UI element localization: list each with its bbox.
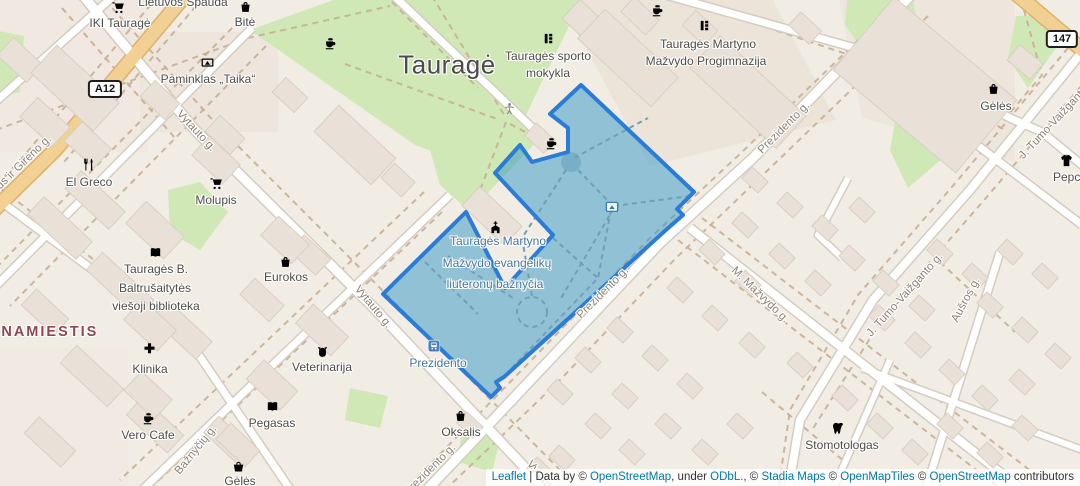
attribution-text: © bbox=[825, 471, 840, 483]
attribution-link-openstreetmap[interactable]: OpenStreetMap bbox=[590, 471, 671, 483]
attribution-link-openmaptiles[interactable]: OpenMapTiles bbox=[840, 471, 914, 483]
road-shield-a12: A12 bbox=[88, 80, 122, 98]
attribution-link-odbl[interactable]: ODbL. bbox=[710, 471, 743, 483]
attribution-text: contributors bbox=[1011, 471, 1074, 483]
attribution-bar: Leaflet | Data by © OpenStreetMap, under… bbox=[486, 469, 1080, 486]
attribution-text: © bbox=[915, 471, 930, 483]
map-canvas[interactable]: Lietuvos SpaudaIKI TauragėBitėPaminklas … bbox=[0, 0, 1080, 486]
attribution-text: | Data by © bbox=[526, 471, 590, 483]
attribution-link-leaflet[interactable]: Leaflet bbox=[492, 471, 527, 483]
map-base-layer bbox=[0, 0, 1080, 486]
attribution-text: , under bbox=[671, 471, 710, 483]
road-shield-147: 147 bbox=[1046, 30, 1078, 48]
attribution-link-stadia-maps[interactable]: Stadia Maps bbox=[761, 471, 825, 483]
attribution-text: , © bbox=[743, 471, 761, 483]
attribution-link-openstreetmap[interactable]: OpenStreetMap bbox=[930, 471, 1011, 483]
